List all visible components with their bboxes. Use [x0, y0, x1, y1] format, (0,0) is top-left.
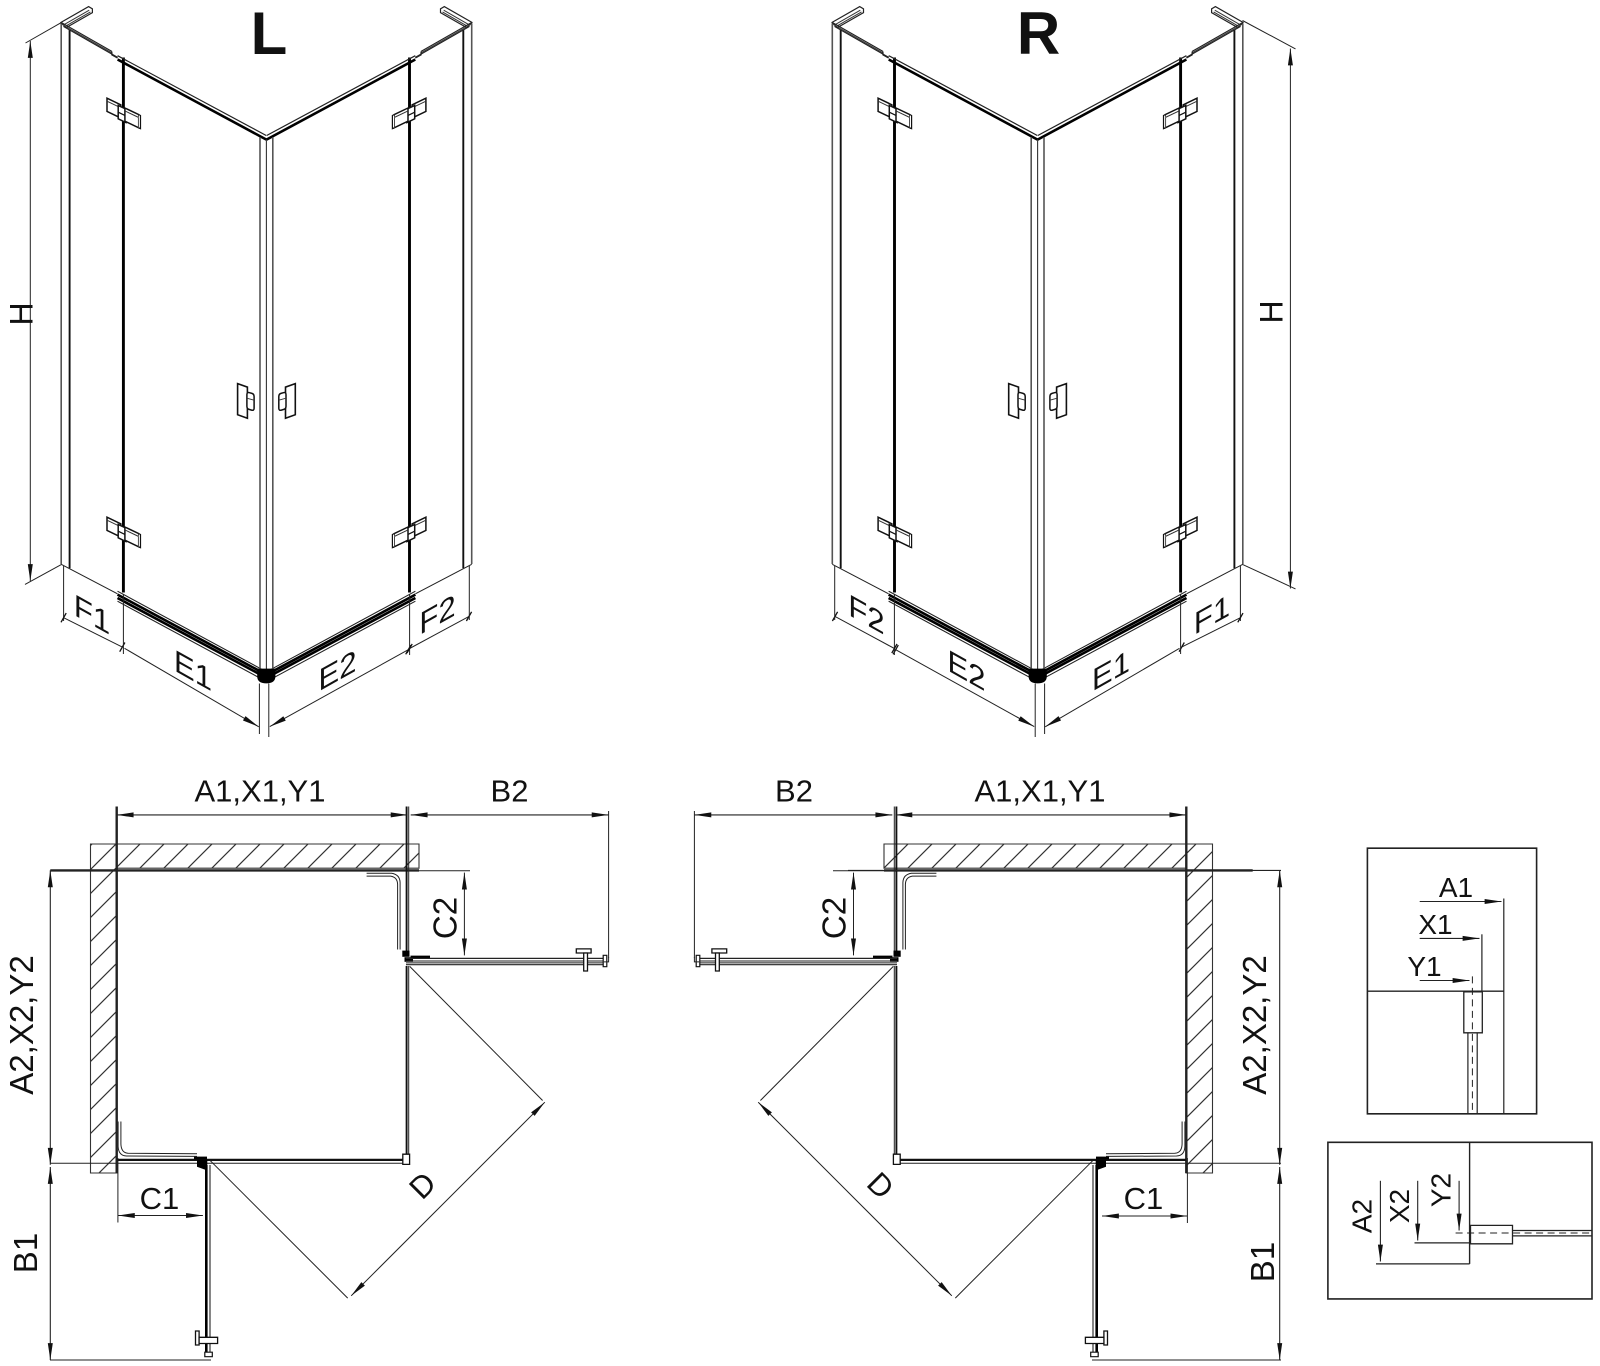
svg-text:H: H [4, 302, 40, 325]
svg-text:B2: B2 [775, 774, 813, 809]
svg-text:R: R [1017, 0, 1060, 67]
svg-text:B2: B2 [491, 774, 529, 809]
svg-text:X1: X1 [1418, 909, 1452, 940]
svg-text:B1: B1 [1244, 1242, 1281, 1282]
svg-text:C1: C1 [140, 1181, 180, 1216]
svg-text:A1,X1,Y1: A1,X1,Y1 [195, 774, 326, 809]
svg-text:C2: C2 [816, 897, 853, 939]
svg-text:A2,X2,Y2: A2,X2,Y2 [1236, 955, 1273, 1094]
svg-text:A2: A2 [1347, 1199, 1378, 1233]
svg-text:L: L [251, 0, 288, 67]
svg-text:A1: A1 [1439, 872, 1473, 903]
svg-text:C2: C2 [427, 897, 464, 939]
svg-text:B1: B1 [7, 1233, 44, 1273]
svg-text:A1,X1,Y1: A1,X1,Y1 [975, 774, 1106, 809]
svg-text:C1: C1 [1124, 1181, 1164, 1216]
svg-text:Y1: Y1 [1407, 951, 1441, 982]
svg-text:X2: X2 [1384, 1189, 1415, 1223]
svg-text:H: H [1254, 300, 1290, 323]
svg-text:A2,X2,Y2: A2,X2,Y2 [3, 955, 40, 1094]
svg-text:Y2: Y2 [1426, 1173, 1457, 1207]
